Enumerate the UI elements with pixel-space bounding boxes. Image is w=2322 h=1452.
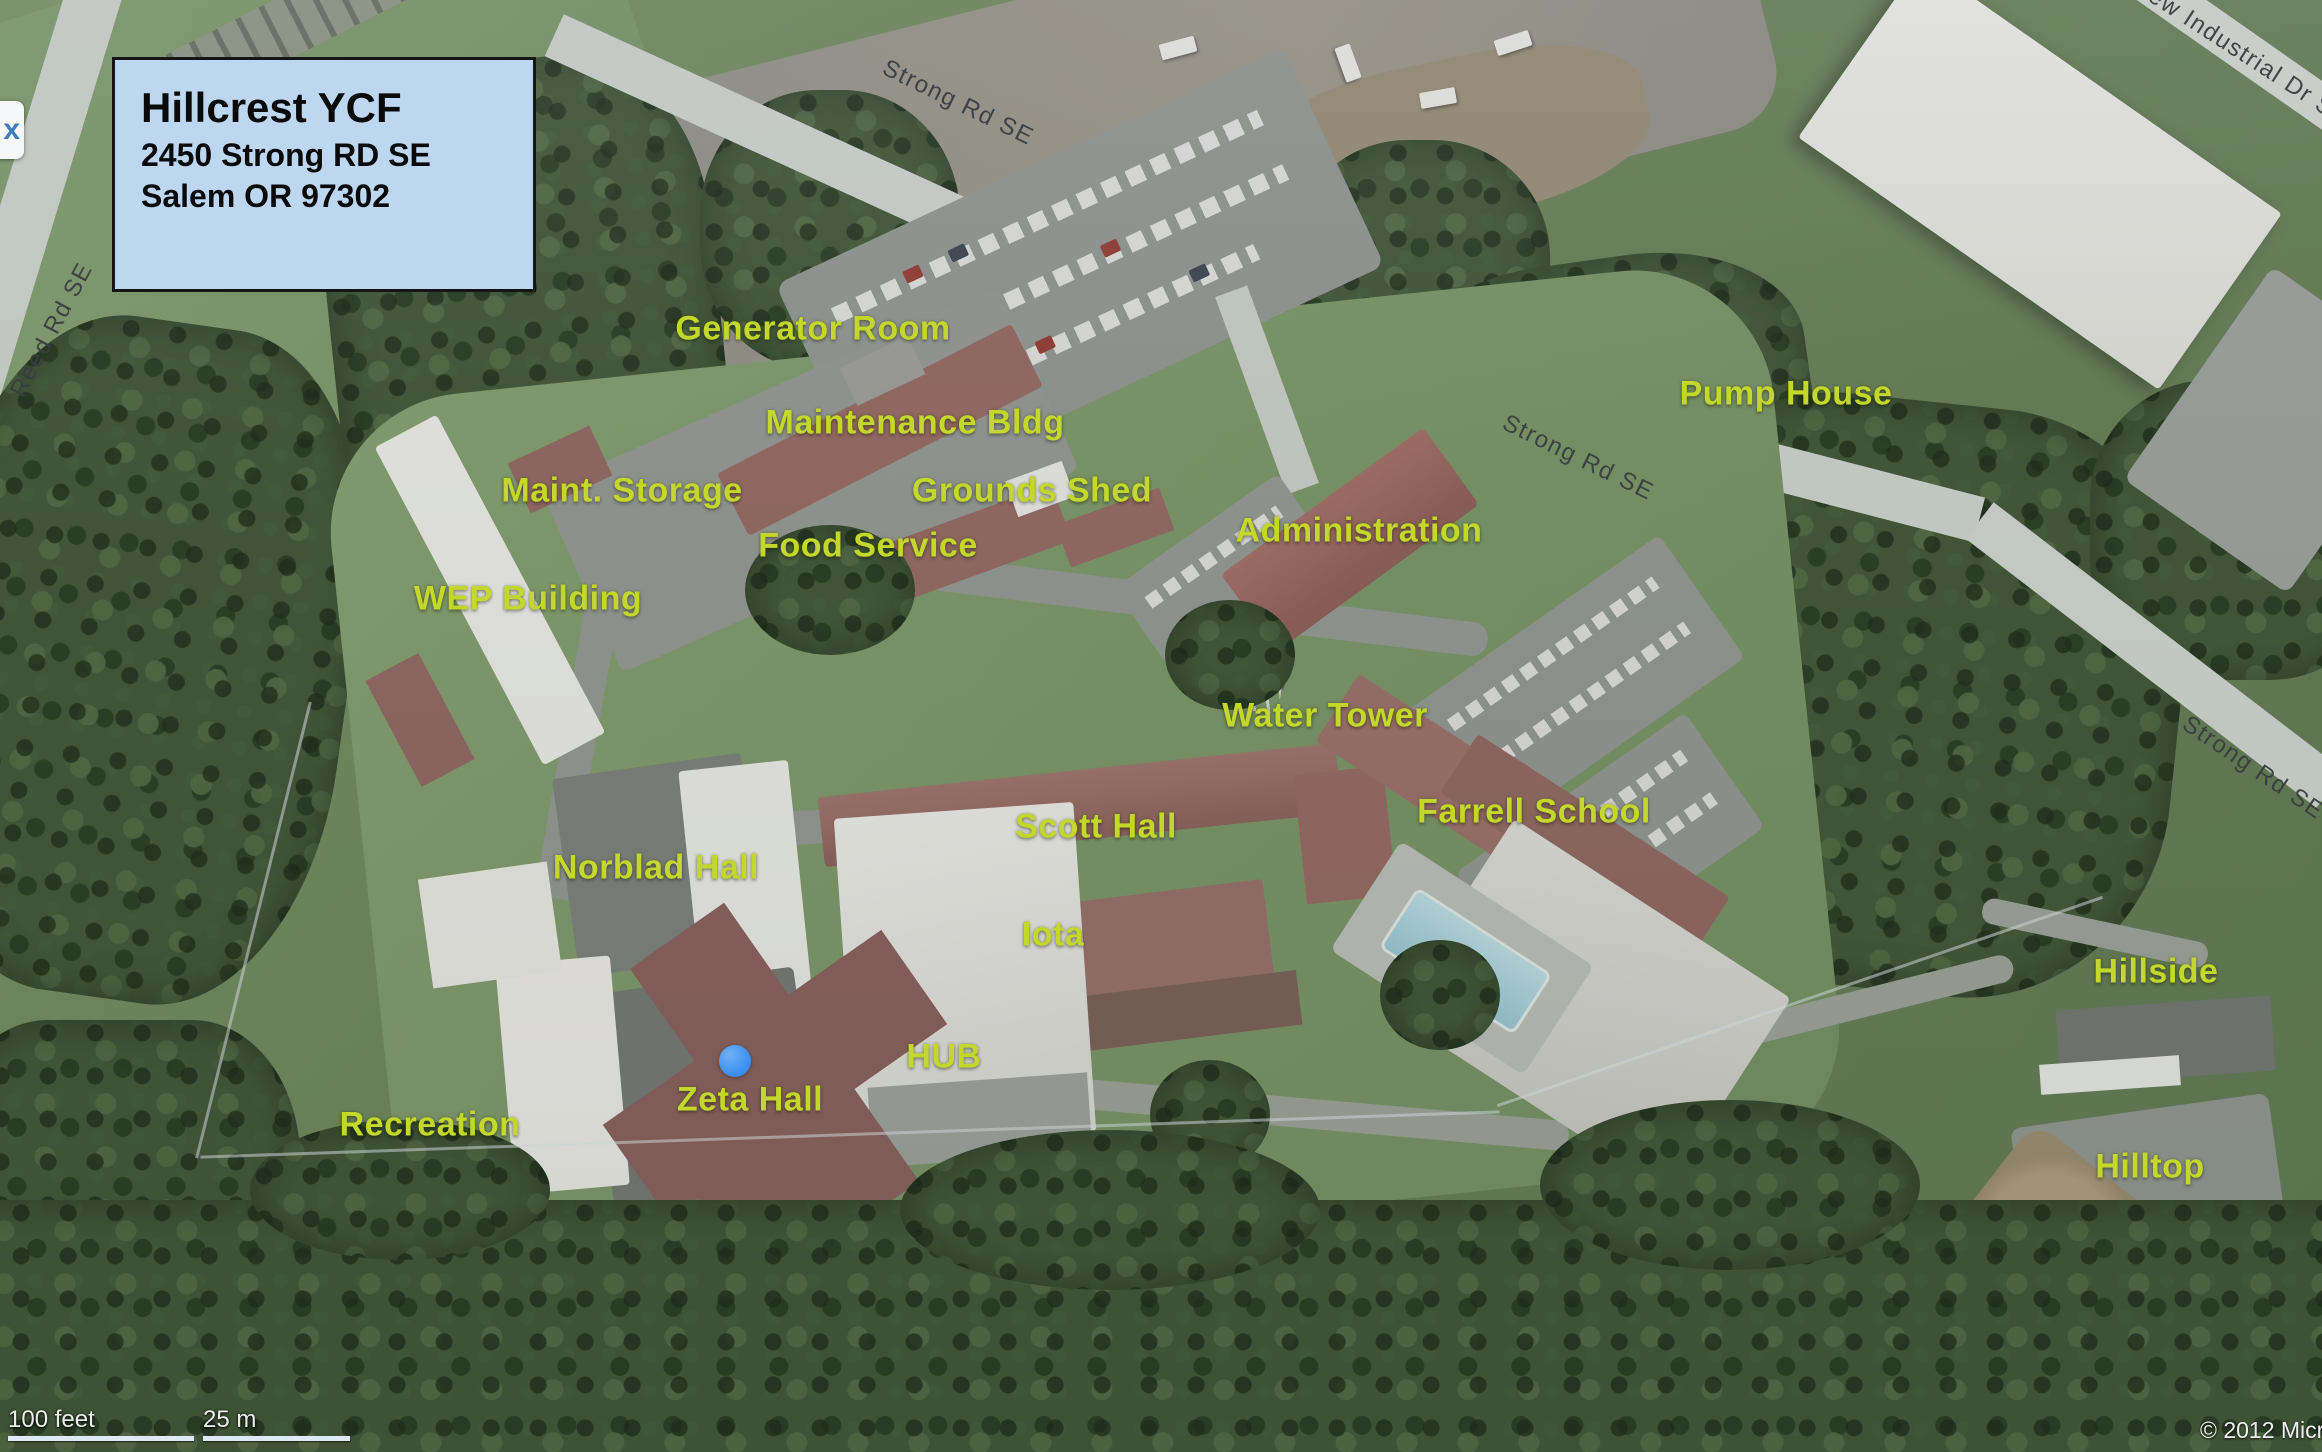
place-label-hub: HUB — [906, 1038, 981, 1077]
forest-bump-3 — [1540, 1100, 1920, 1270]
place-label-recreation: Recreation — [340, 1106, 521, 1145]
place-label-food-service: Food Service — [758, 527, 978, 566]
scale-metric-label: 25 m — [203, 1406, 256, 1434]
close-button[interactable]: x — [0, 101, 24, 159]
place-label-water-tower: Water Tower — [1222, 697, 1428, 736]
location-marker-dot — [719, 1045, 751, 1077]
place-label-grounds-shed: Grounds Shed — [912, 472, 1152, 511]
place-label-pump-house: Pump House — [1680, 375, 1893, 414]
place-label-scott-hall: Scott Hall — [1015, 808, 1177, 847]
place-label-farrell-school: Farrell School — [1417, 793, 1651, 832]
scale-bar-feet — [8, 1436, 194, 1441]
bushes-water-tower — [1165, 600, 1295, 710]
info-box-address2: Salem OR 97302 — [141, 176, 507, 218]
building-recreation-north — [418, 861, 562, 988]
place-label-wep-building: WEP Building — [414, 580, 642, 619]
place-label-generator-room: Generator Room — [675, 310, 950, 349]
place-label-hilltop: Hilltop — [2095, 1148, 2204, 1187]
place-label-norblad-hall: Norblad Hall — [553, 849, 759, 888]
info-box-title: Hillcrest YCF — [141, 82, 507, 135]
scale-bar-metric — [203, 1436, 350, 1441]
place-label-maintenance-bldg: Maintenance Bldg — [766, 404, 1065, 443]
place-label-iota: Iota — [1022, 916, 1084, 955]
trees-pool — [1380, 940, 1500, 1050]
info-box: Hillcrest YCF 2450 Strong RD SE Salem OR… — [112, 57, 536, 292]
map-screenshot: Strong Rd SEStrong Rd SEStrong Rd SEReed… — [0, 0, 2322, 1452]
place-label-maint-storage: Maint. Storage — [501, 472, 742, 511]
scale-feet-label: 100 feet — [8, 1406, 95, 1434]
info-box-address1: 2450 Strong RD SE — [141, 135, 507, 177]
place-label-hillside: Hillside — [2094, 953, 2219, 992]
place-label-zeta-hall: Zeta Hall — [677, 1081, 823, 1120]
copyright-text: © 2012 Micro — [2200, 1417, 2322, 1444]
place-label-administration: Administration — [1236, 512, 1483, 551]
forest-bump-2 — [900, 1130, 1320, 1290]
close-icon: x — [3, 113, 20, 147]
